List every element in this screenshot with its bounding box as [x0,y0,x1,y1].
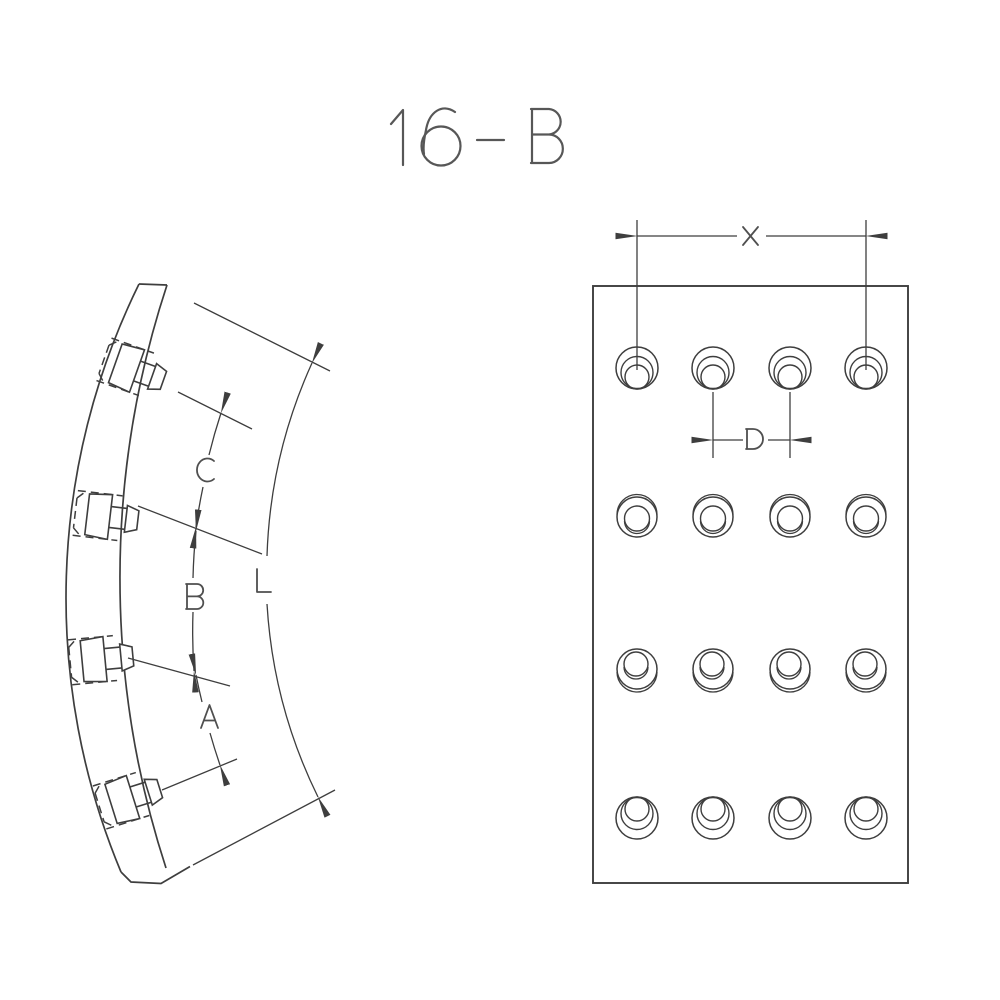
band-top-end [139,284,167,285]
hole-r3c2 [693,649,733,692]
hole-r3c1 [617,649,657,692]
extension-line-top-end [194,303,330,371]
label-b-glyph [186,584,203,609]
dimension-x [637,220,866,370]
extension-line-rivet-3 [128,658,230,686]
extension-line-rivet-2 [138,506,262,554]
drawing-page: 16-B C B A L X D [0,0,1000,1000]
title-digit-1 [391,110,403,165]
dimension-a [196,675,220,765]
hole-r3c3 [770,649,810,692]
extension-line-bottom-end [193,790,335,865]
extension-line-rivet-1 [178,392,252,429]
title-letter-b [531,109,563,163]
dimension-b [186,531,203,671]
drawing-title [391,108,563,165]
hole-r2c3 [770,495,810,538]
hole-r4c3 [769,797,811,839]
hole-r4c1 [616,797,658,839]
band-bottom-end [121,867,190,884]
hole-r2c1 [617,495,657,538]
hole-r3c4 [846,649,886,692]
dimension-d [713,392,790,458]
label-a-glyph [201,705,218,728]
label-c-glyph [197,459,214,482]
rivet-4 [93,767,167,829]
title-digit-6 [422,108,461,165]
rivet-2 [73,491,141,543]
hole-r2c4 [846,495,886,538]
rivet-1 [96,338,170,401]
hole-r1c2 [692,347,734,389]
drawing-canvas [0,0,1000,1000]
hole-r1c3 [769,347,811,389]
dimension-c [196,413,221,527]
lining-face-outline [593,286,908,883]
extension-line-rivet-4 [162,759,237,790]
label-d-glyph [746,429,763,449]
hole-r4c4 [845,797,887,839]
label-l-glyph [257,569,271,592]
hole-r2c2 [693,495,733,538]
side-view [66,284,335,884]
dimension-l [257,363,318,797]
label-x-glyph [743,227,758,245]
face-view [593,220,908,883]
hole-r4c2 [692,797,734,839]
